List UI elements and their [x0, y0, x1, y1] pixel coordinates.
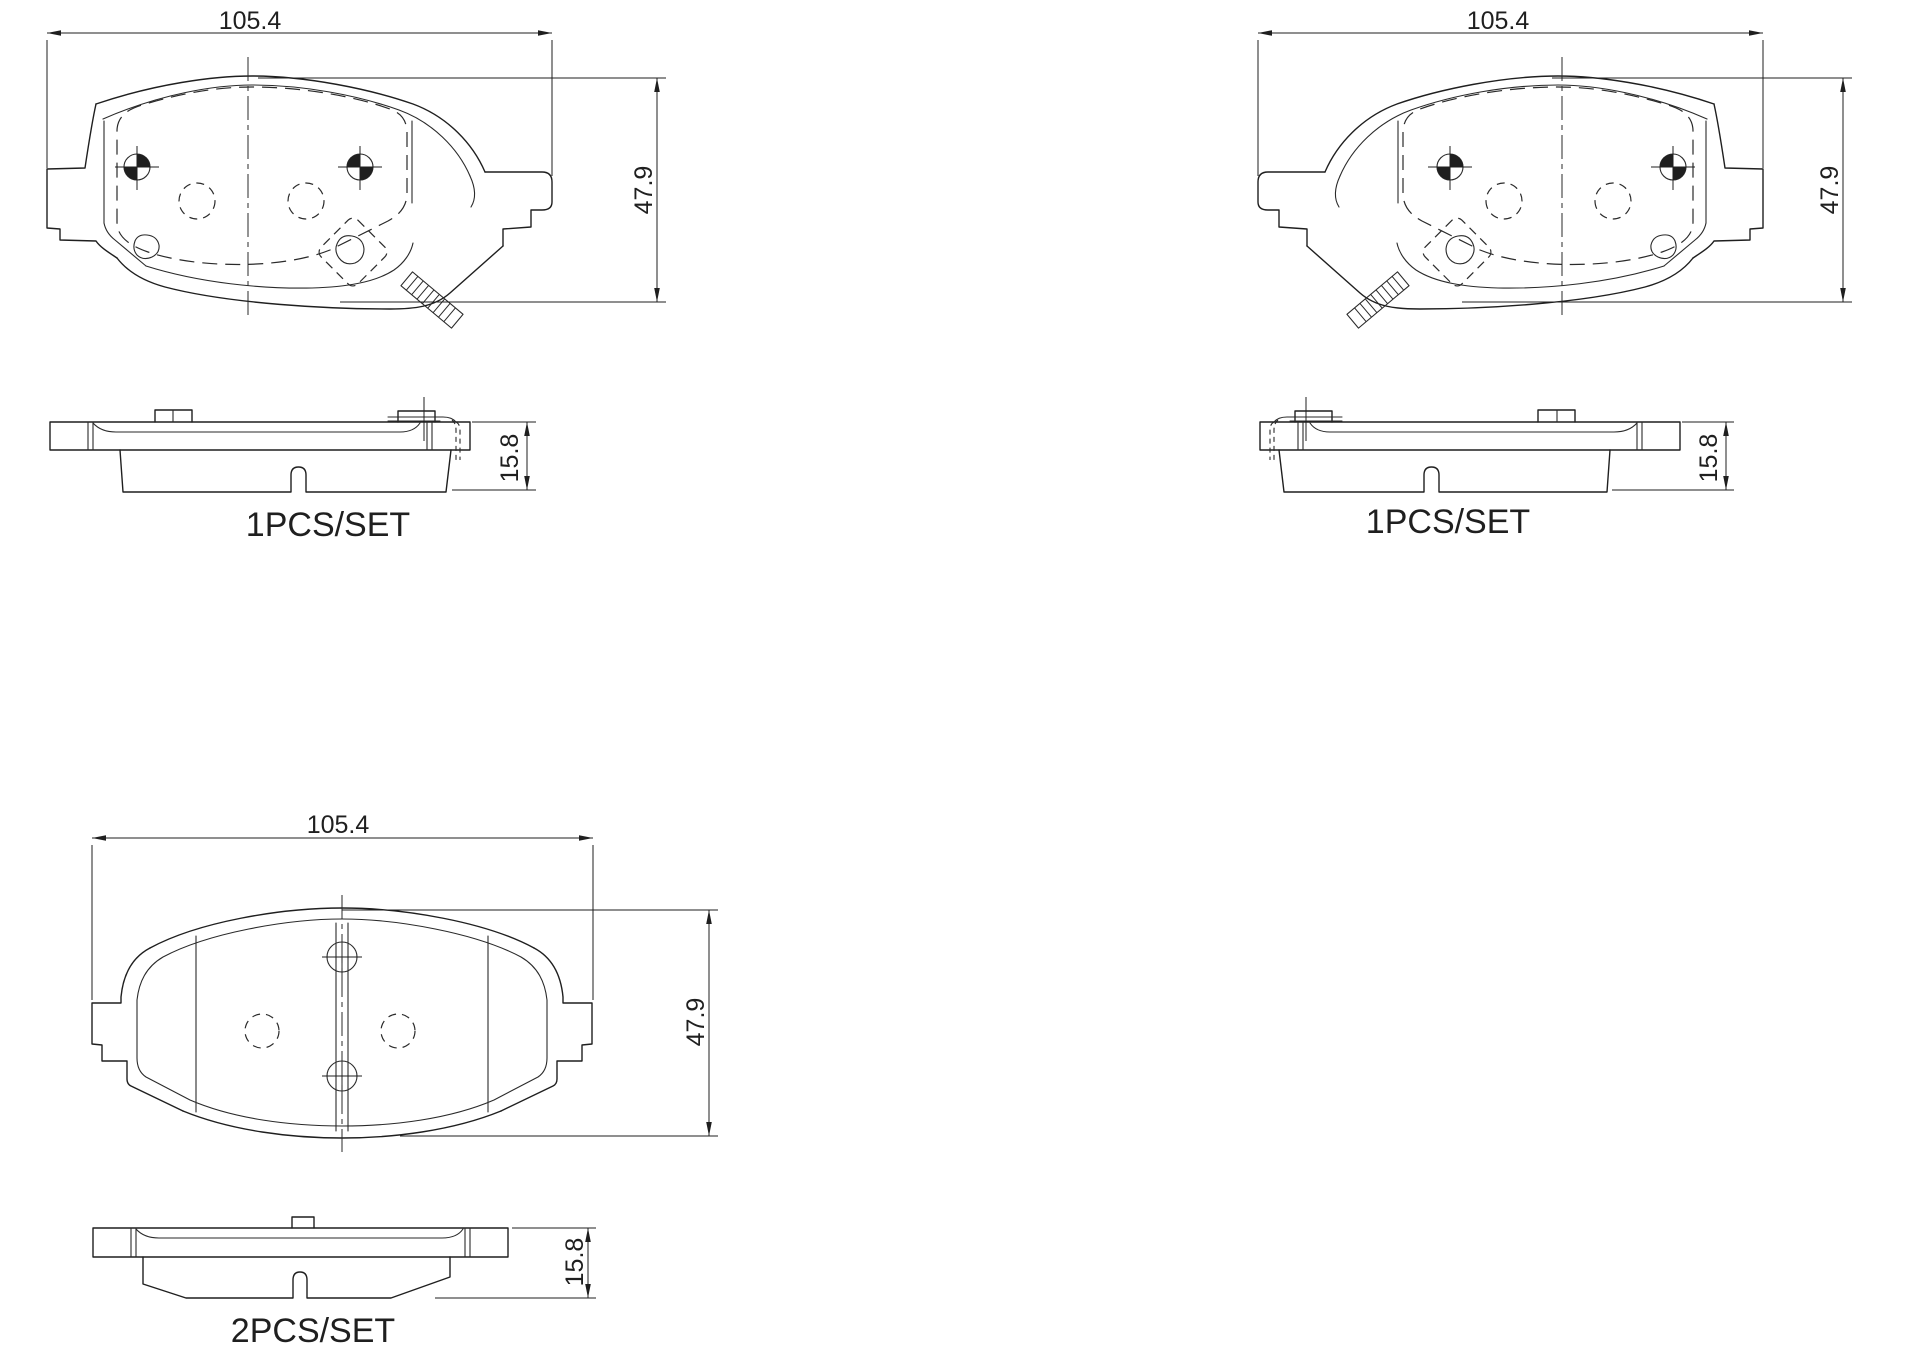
- width-dimension: 105.4: [1258, 7, 1763, 176]
- outer-pad-right-drawing: 105.4 47.9 15.8 1PCS/SET: [1258, 7, 1852, 541]
- thickness-dimension-label: 15.8: [496, 434, 524, 483]
- height-dimension-label: 47.9: [682, 998, 710, 1047]
- height-dimension: 47.9: [342, 910, 718, 1136]
- width-dimension-label: 105.4: [1467, 7, 1530, 35]
- technical-drawing-canvas: 105.4 47.9 15.8 1PCS/SET 105.4: [0, 0, 1920, 1358]
- thickness-dimension: 15.8: [452, 422, 536, 490]
- width-dimension: 105.4: [47, 7, 552, 176]
- thickness-dimension: 15.8: [435, 1228, 596, 1298]
- drawing-sheet: 105.4 47.9 15.8 1PCS/SET 105.4: [0, 0, 1920, 1358]
- set-quantity-label: 1PCS/SET: [246, 506, 410, 544]
- front-view: [92, 895, 592, 1152]
- inner-pad-drawing: 105.4 47.9 15.8 2PCS/SET: [92, 811, 718, 1350]
- width-dimension-label: 105.4: [219, 7, 282, 35]
- set-quantity-label: 1PCS/SET: [1366, 503, 1530, 541]
- front-view: [1258, 57, 1763, 328]
- height-dimension: 47.9: [258, 78, 666, 302]
- width-dimension-label: 105.4: [307, 811, 370, 839]
- hidden-hole: [381, 1014, 415, 1048]
- set-quantity-label: 2PCS/SET: [231, 1312, 395, 1350]
- side-view: [93, 1217, 508, 1298]
- height-dimension-label: 47.9: [1816, 166, 1844, 215]
- side-view: [50, 397, 470, 492]
- height-dimension-label: 47.9: [630, 166, 658, 215]
- outer-pad-left-drawing: 105.4 47.9 15.8 1PCS/SET: [47, 7, 666, 544]
- thickness-dimension: 15.8: [1612, 422, 1734, 490]
- front-view: [47, 57, 552, 328]
- hidden-hole: [245, 1014, 279, 1048]
- side-view: [1260, 397, 1680, 492]
- thickness-dimension-label: 15.8: [1695, 434, 1723, 483]
- thickness-dimension-label: 15.8: [561, 1238, 589, 1287]
